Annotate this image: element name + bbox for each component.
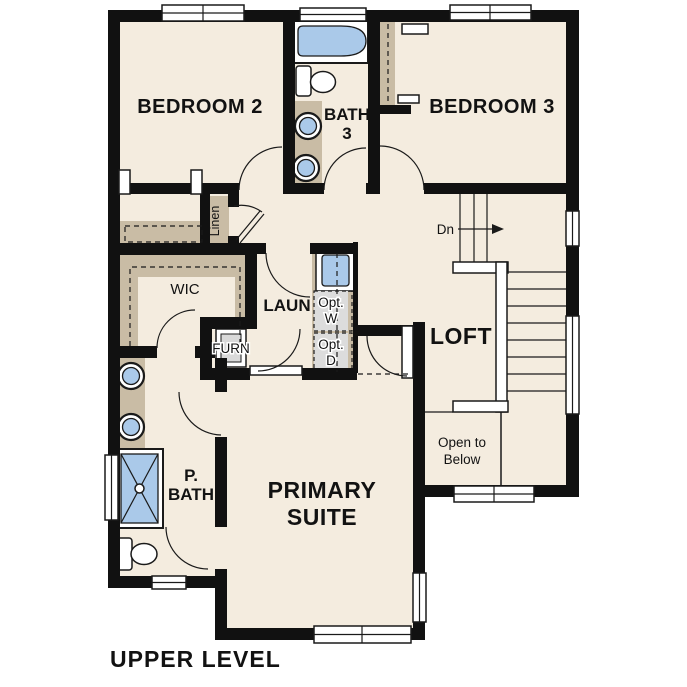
- bath3-label-line1: BATH: [324, 105, 370, 124]
- upper-level-floorplan: BEDROOM 2 BATH 3 BEDROOM 3 Linen WIC LAU…: [0, 0, 687, 687]
- window-left-shower: [105, 455, 118, 520]
- laundry-sink-icon: [322, 255, 349, 286]
- window-primary-right: [413, 573, 426, 622]
- bath3-toilet-bowl-icon: [311, 72, 336, 93]
- wall-primary-left-b: [215, 437, 227, 527]
- wall-bath3-bottom-right: [366, 183, 380, 194]
- wall-laundry-top-right: [310, 243, 357, 254]
- plan-title: UPPER LEVEL: [110, 646, 281, 672]
- stair-direction-label: Dn: [437, 222, 454, 237]
- window-bath3-top: [300, 8, 366, 21]
- laundry-label: LAUN: [263, 296, 310, 315]
- pbath-sink-1-basin: [123, 368, 140, 385]
- bath3-label-line2: 3: [342, 124, 351, 143]
- wall-laundry-strip: [353, 242, 358, 373]
- shower-drain-icon: [135, 484, 144, 493]
- pbath-sink-2-basin: [123, 419, 140, 436]
- wall-bedroom3-bottom: [424, 183, 566, 194]
- pbath-label-line2: BATH: [168, 485, 214, 504]
- opt-washer-label-line2: W: [325, 311, 338, 326]
- linen-label: Linen: [208, 206, 222, 237]
- primary-suite-label-line2: SUITE: [287, 504, 357, 530]
- window-bedroom3-top: [450, 5, 531, 20]
- furnace-label: FURN: [212, 341, 250, 356]
- window-right-stair: [566, 316, 579, 414]
- pbath-toilet-bowl-icon: [131, 544, 157, 565]
- window-loft-bottom: [454, 486, 534, 502]
- bedroom2-label: BEDROOM 2: [137, 96, 263, 118]
- opt-dryer-label-line2: D: [326, 353, 336, 368]
- wall-primary-left-c: [215, 569, 227, 640]
- bedroom3-label: BEDROOM 3: [429, 96, 555, 118]
- jamb-bedroom3-closet-top: [402, 24, 428, 34]
- open-to-below-label-line2: Below: [444, 452, 481, 467]
- primary-suite-label-line1: PRIMARY: [268, 477, 377, 503]
- wall-primary-top: [302, 368, 357, 380]
- jamb-bedroom2-closet-left: [119, 170, 130, 194]
- wall-primary-left-a: [215, 358, 227, 392]
- stair-rail-bottom: [453, 401, 508, 412]
- opt-washer-label-line1: Opt.: [318, 295, 344, 310]
- wall-wic-top: [108, 243, 257, 255]
- pbath-label-line1: P.: [184, 466, 198, 485]
- floorplan-page: BEDROOM 2 BATH 3 BEDROOM 3 Linen WIC LAU…: [0, 0, 687, 687]
- wall-wic-laundry: [245, 243, 257, 329]
- wic-label: WIC: [170, 281, 199, 298]
- window-pbath-bottom: [152, 576, 186, 589]
- wall-bath3-bottom-left: [283, 183, 324, 194]
- opt-dryer-label-line1: Opt.: [318, 337, 344, 352]
- wall-laundry-top-left: [257, 243, 266, 254]
- window-right-upper: [566, 211, 579, 246]
- wall-primary-entry-top: [353, 325, 425, 336]
- window-primary-bottom: [314, 626, 411, 643]
- jamb-bedroom3-closet-mid: [398, 95, 419, 103]
- bath3-sink-1-basin: [300, 118, 317, 135]
- wall-bedroom3-closet-stub: [378, 105, 411, 114]
- loft-label: LOFT: [430, 323, 492, 349]
- wall-bedroom2-bath3: [283, 22, 295, 194]
- open-to-below-label-line1: Open to: [438, 435, 486, 450]
- wall-wic-bottom-left: [108, 346, 157, 358]
- bath3-sink-2-basin: [298, 160, 315, 177]
- bath3-toilet-tank-icon: [296, 66, 311, 96]
- window-bedroom2-top: [162, 5, 244, 21]
- bathtub-icon: [298, 26, 366, 56]
- stair-rail-vertical: [496, 262, 507, 412]
- wall-outer-right: [566, 10, 579, 497]
- jamb-bedroom2-closet-right: [191, 170, 202, 194]
